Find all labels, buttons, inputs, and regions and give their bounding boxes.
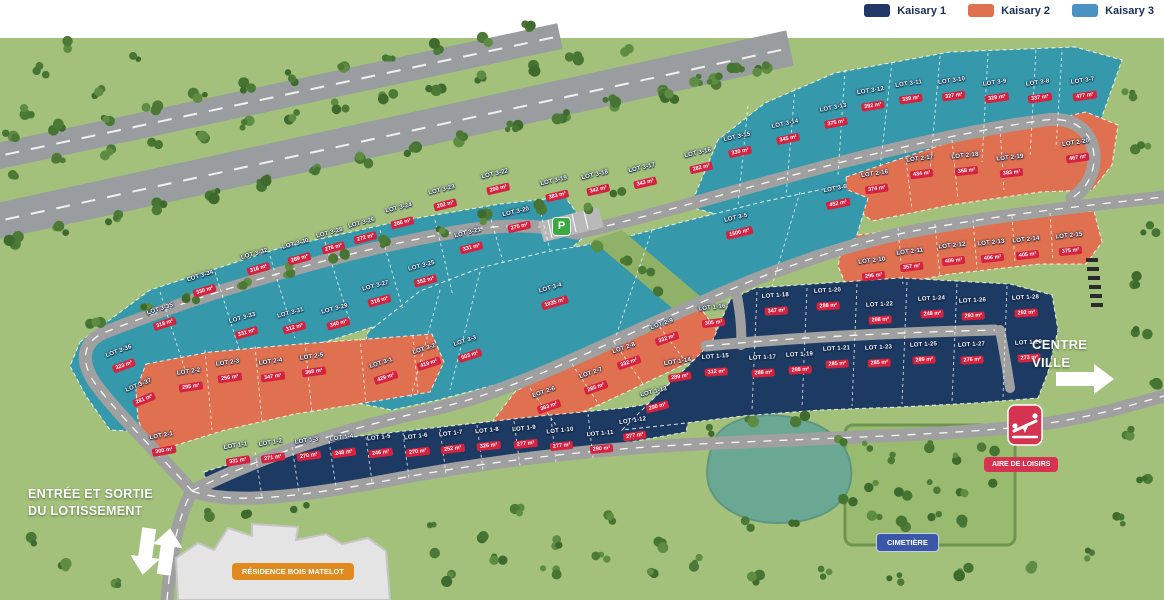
- lot-area-badge: 295 m²: [179, 381, 203, 392]
- lot-id: LOT 2-6: [532, 386, 556, 399]
- lot-area-badge: 375 m²: [1059, 246, 1083, 256]
- lot-id: LOT 1-5: [367, 434, 391, 443]
- lot-id: LOT 3-17: [628, 162, 656, 174]
- lot-label[interactable]: LOT 1-16305 m²: [698, 304, 728, 331]
- lot-label[interactable]: LOT 2-11357 m²: [896, 247, 926, 274]
- parking-icon: P: [552, 217, 571, 236]
- lot-label[interactable]: LOT 2-15375 m²: [1055, 232, 1085, 259]
- lot-label[interactable]: LOT 3-16282 m²: [684, 147, 716, 177]
- lot-id: LOT 1-9: [512, 425, 536, 433]
- lot-label[interactable]: LOT 3-23292 m²: [428, 184, 460, 214]
- lot-label[interactable]: LOT 3-28276 m²: [316, 227, 349, 257]
- lot-area-badge: 276 m²: [321, 241, 346, 255]
- lot-label[interactable]: LOT 1-6270 m²: [404, 433, 430, 460]
- lot-area-badge: 277 m²: [514, 439, 538, 449]
- lot-area-badge: 296 m²: [862, 271, 886, 282]
- lot-id: LOT 1-8: [475, 427, 499, 435]
- lot-label[interactable]: LOT 3-20275 m²: [502, 206, 534, 236]
- lot-id: LOT 3-10: [938, 76, 966, 86]
- lot-id: LOT 2-12: [938, 242, 966, 251]
- lot-id: LOT 3-16: [684, 147, 712, 159]
- lot-label[interactable]: LOT 1-28292 m²: [1012, 294, 1040, 319]
- lot-label[interactable]: LOT 3-24286 m²: [385, 202, 417, 232]
- lot-area-badge: 409 m²: [942, 256, 966, 266]
- lot-label[interactable]: LOT 1-14289 m²: [664, 357, 695, 385]
- lot-id: LOT 3-30: [282, 238, 310, 251]
- lot-label[interactable]: LOT 3-11339 m²: [895, 79, 925, 107]
- kaisary-2-label: Kaisary 2: [1001, 5, 1050, 17]
- lot-label[interactable]: LOT 3-19383 m²: [540, 175, 572, 205]
- lot-label[interactable]: LOT 1-12277 m²: [619, 416, 649, 444]
- lot-label[interactable]: LOT 2-4347 m²: [259, 357, 286, 384]
- lot-area-badge: 357 m²: [900, 262, 924, 273]
- lot-label[interactable]: LOT 1-18347 m²: [762, 292, 791, 318]
- lot-label[interactable]: LOT 3-51506 m²: [722, 212, 753, 241]
- lot-label[interactable]: LOT 1-26293 m²: [959, 297, 987, 322]
- lot-id: LOT 2-1: [149, 431, 173, 441]
- lot-id: LOT 1-20: [814, 287, 842, 294]
- lot-label[interactable]: LOT 3-12392 m²: [857, 86, 888, 114]
- lot-area-badge: 331 m²: [226, 455, 250, 467]
- lot-label[interactable]: LOT 2-8332 m²: [612, 342, 642, 372]
- lot-id: LOT 3-35: [146, 302, 174, 316]
- lot-label[interactable]: LOT 2-14405 m²: [1012, 236, 1042, 263]
- lot-label[interactable]: LOT 3-10327 m²: [938, 76, 968, 104]
- lot-area-badge: 300 m²: [152, 445, 176, 457]
- lot-area-badge: 275 m²: [507, 220, 532, 233]
- lot-id: LOT 1-24: [918, 295, 946, 302]
- lot-label[interactable]: LOT 2-18368 m²: [951, 152, 981, 179]
- lot-label[interactable]: LOT 2-1300 m²: [149, 431, 177, 459]
- kaisary-2-swatch: [968, 4, 994, 17]
- lot-label[interactable]: LOT 1-10277 m²: [546, 427, 576, 454]
- lot-area-badge: 277 m²: [623, 430, 647, 441]
- lot-id: LOT 1-19: [786, 351, 814, 358]
- lot-id: LOT 3-1: [369, 357, 393, 370]
- lot-area-badge: 286 m²: [390, 216, 415, 229]
- lot-id: LOT 1-17: [749, 354, 777, 361]
- lot-area-badge: 434 m²: [910, 169, 934, 180]
- lot-area-badge: 331 m²: [459, 241, 484, 254]
- lot-label[interactable]: LOT 2-20467 m²: [1062, 138, 1092, 166]
- lot-area-badge: 368 m²: [302, 366, 326, 377]
- lot-area-badge: 288 m²: [868, 315, 892, 324]
- lot-area-badge: 277 m²: [550, 441, 574, 451]
- lot-label[interactable]: LOT 3-25352 m²: [408, 260, 441, 290]
- lot-area-badge: 248 m²: [332, 447, 356, 458]
- lot-area-badge: 392 m²: [861, 100, 885, 112]
- lot-id: LOT 1-2: [258, 438, 282, 448]
- lot-area-badge: 343 m²: [633, 176, 658, 189]
- lot-label[interactable]: LOT 3-33331 m²: [229, 312, 262, 343]
- lot-label[interactable]: LOT 1-3270 m²: [295, 436, 322, 463]
- lot-label[interactable]: LOT 1-17288 m²: [749, 354, 777, 379]
- lot-label[interactable]: LOT 2-2295 m²: [177, 367, 204, 394]
- lot-area-badge: 285 m²: [584, 380, 609, 395]
- lot-id: LOT 2-17: [906, 154, 934, 163]
- lot-area-badge: 330 m²: [192, 283, 217, 298]
- lot-area-badge: 271 m²: [261, 452, 285, 464]
- lot-label[interactable]: LOT 3-34330 m²: [186, 270, 219, 301]
- lot-label[interactable]: LOT 3-36323 m²: [105, 344, 139, 376]
- lot-id: LOT 3-24: [385, 202, 413, 214]
- lot-label[interactable]: LOT 3-35318 m²: [146, 302, 179, 333]
- lot-id: LOT 3-19: [540, 175, 568, 187]
- lot-label[interactable]: LOT 3-21331 m²: [454, 227, 486, 257]
- lot-area-badge: 406 m²: [981, 253, 1005, 263]
- kaisary-1-label: Kaisary 1: [897, 5, 946, 17]
- lot-id: LOT 3-13: [819, 103, 847, 114]
- lot-label[interactable]: LOT 3-26272 m²: [348, 217, 381, 247]
- lot-id: LOT 2-13: [977, 239, 1005, 248]
- lot-area-badge: 289 m²: [668, 371, 692, 383]
- lot-area-badge: 246 m²: [369, 448, 393, 459]
- lot-label[interactable]: LOT 1-25289 m²: [910, 341, 938, 366]
- centre-ville-label: CENTRE VILLE: [1032, 336, 1087, 371]
- lot-area-badge: 452 m²: [826, 198, 851, 210]
- lot-id: LOT 3-22: [481, 168, 509, 180]
- lot-id: LOT 1-15: [702, 353, 730, 361]
- lot-id: LOT 2-3: [216, 358, 240, 367]
- lot-label[interactable]: LOT 2-13406 m²: [977, 239, 1007, 266]
- lot-area-badge: 285 m²: [867, 358, 891, 367]
- lot-id: LOT 3-11: [895, 79, 923, 89]
- lot-area-badge: 288 m²: [751, 368, 775, 377]
- lot-label[interactable]: LOT 1-21285 m²: [823, 345, 851, 370]
- lot-label[interactable]: LOT 2-16374 m²: [861, 169, 891, 197]
- lot-id: LOT 1-27: [958, 341, 986, 348]
- lot-id: LOT 3-27: [362, 280, 390, 293]
- lot-id: LOT 1-16: [698, 304, 726, 313]
- lot-label[interactable]: LOT 2-10296 m²: [858, 256, 888, 283]
- lot-area-badge: 330 m²: [728, 146, 753, 159]
- lot-label[interactable]: LOT 1-22288 m²: [866, 301, 894, 326]
- lot-area-badge: 248 m²: [920, 309, 944, 318]
- lot-id: LOT 2-8: [612, 342, 636, 355]
- lot-area-badge: 290 m²: [645, 400, 670, 413]
- lot-area-badge: 288 m²: [788, 365, 812, 374]
- lot-id: LOT 1-7: [439, 430, 463, 439]
- lot-label[interactable]: LOT 3-29340 m²: [321, 303, 354, 333]
- lot-id: LOT 3-2: [412, 343, 436, 356]
- lot-area-badge: 342 m²: [586, 183, 611, 196]
- lot-id: LOT 2-2: [177, 367, 201, 376]
- lot-label[interactable]: LOT 3-17343 m²: [628, 162, 660, 192]
- lot-id: LOT 2-15: [1055, 232, 1083, 241]
- lot-area-badge: 318 m²: [152, 316, 177, 331]
- lot-area-badge: 374 m²: [865, 183, 889, 194]
- lot-area-badge: 332 m²: [655, 331, 680, 346]
- lot-labels-layer: LOT 3-1429 m²LOT 3-2419 m²LOT 3-3503 m²L…: [0, 0, 1164, 600]
- lot-label[interactable]: LOT 1-27276 m²: [958, 341, 986, 366]
- lot-id: LOT 2-19: [996, 154, 1024, 163]
- lot-area-badge: 252 m²: [441, 444, 465, 455]
- lot-id: LOT 1-25: [910, 341, 938, 348]
- lot-id: LOT 1-21: [823, 345, 851, 352]
- lot-id: LOT 3-4: [537, 282, 564, 295]
- lot-label[interactable]: LOT 3-7477 m²: [1071, 76, 1098, 103]
- lot-label[interactable]: LOT 3-3503 m²: [453, 335, 483, 365]
- lot-id: LOT 2-11: [896, 247, 923, 256]
- lot-id: LOT 3-15: [723, 131, 751, 143]
- lot-label[interactable]: LOT 1-2271 m²: [258, 438, 285, 465]
- lot-id: LOT 1-4: [330, 433, 354, 442]
- lot-id: LOT 3-6: [823, 184, 847, 194]
- lot-area-badge: 327 m²: [942, 90, 966, 101]
- lot-area-badge: 288 m²: [816, 301, 840, 310]
- lot-label[interactable]: LOT 1-19288 m²: [786, 351, 814, 376]
- lot-label[interactable]: LOT 3-32316 m²: [241, 248, 274, 279]
- lot-label[interactable]: LOT 3-37281 m²: [125, 378, 159, 410]
- legend: Kaisary 1 Kaisary 2 Kaisary 3: [864, 4, 1154, 17]
- lot-label[interactable]: LOT 1-9277 m²: [512, 425, 538, 451]
- lot-id: LOT 2-7: [579, 367, 603, 380]
- lot-area-badge: 1506 m²: [726, 226, 754, 240]
- lot-id: LOT 1-1: [223, 441, 247, 451]
- lot-label[interactable]: LOT 2-19383 m²: [996, 154, 1026, 181]
- lot-id: LOT 2-16: [861, 169, 889, 179]
- lot-area-badge: 305 m²: [702, 318, 726, 328]
- lot-id: LOT 3-5: [722, 212, 749, 224]
- lot-id: LOT 1-10: [546, 427, 574, 436]
- lot-label[interactable]: LOT 3-6452 m²: [823, 184, 851, 212]
- kaisary-1-swatch: [864, 4, 890, 17]
- lot-label[interactable]: LOT 3-14345 m²: [771, 118, 803, 147]
- lot-area-badge: 363 m²: [537, 399, 562, 414]
- lot-id: LOT 2-18: [951, 152, 979, 161]
- lot-area-badge: 375 m²: [824, 117, 849, 129]
- lot-label[interactable]: LOT 2-6363 m²: [532, 386, 562, 416]
- lot-id: LOT 3-33: [229, 312, 257, 325]
- lot-area-badge: 329 m²: [985, 92, 1009, 103]
- lot-area-badge: 285 m²: [825, 359, 849, 368]
- lot-area-badge: 477 m²: [1073, 90, 1097, 101]
- lot-id: LOT 1-12: [619, 416, 647, 426]
- lot-label[interactable]: LOT 2-3256 m²: [216, 358, 243, 385]
- kaisary-3-label: Kaisary 3: [1105, 5, 1154, 17]
- lot-label[interactable]: LOT 3-27318 m²: [362, 280, 395, 310]
- lot-area-badge: 1035 m²: [541, 295, 569, 310]
- lot-id: LOT 3-32: [241, 248, 269, 261]
- lot-id: LOT 1-11: [587, 430, 614, 438]
- lot-label[interactable]: LOT 2-5368 m²: [300, 352, 327, 379]
- lot-area-badge: 331 m²: [234, 326, 259, 340]
- legend-item-kaisary-1: Kaisary 1: [864, 4, 946, 17]
- lot-label[interactable]: LOT 3-30289 m²: [282, 238, 315, 268]
- legend-item-kaisary-3: Kaisary 3: [1072, 4, 1154, 17]
- lot-label[interactable]: LOT 2-12409 m²: [938, 242, 968, 269]
- lot-area-badge: 292 m²: [433, 198, 458, 211]
- lot-area-badge: 316 m²: [246, 262, 271, 276]
- lot-id: LOT 3-29: [321, 303, 349, 316]
- lot-id: LOT 3-34: [186, 270, 214, 284]
- lot-id: LOT 3-18: [581, 169, 609, 181]
- lot-label[interactable]: LOT 3-15330 m²: [723, 131, 755, 160]
- residence-badge: RÉSIDENCE BOIS MATELOT: [232, 563, 354, 580]
- lot-label[interactable]: LOT 3-9329 m²: [983, 78, 1010, 105]
- lot-area-badge: 429 m²: [373, 370, 398, 385]
- lot-id: LOT 3-21: [454, 227, 482, 239]
- lot-label[interactable]: LOT 3-1429 m²: [369, 357, 399, 387]
- lot-area-badge: 383 m²: [1000, 168, 1024, 178]
- lot-label[interactable]: LOT 3-13375 m²: [819, 103, 850, 132]
- lot-id: LOT 1-14: [664, 357, 692, 367]
- lot-area-badge: 256 m²: [218, 372, 242, 383]
- lot-area-badge: 312 m²: [282, 321, 307, 335]
- lot-area-badge: 276 m²: [960, 355, 984, 364]
- lot-id: LOT 3-28: [316, 227, 344, 240]
- lot-area-badge: 272 m²: [353, 231, 378, 245]
- lot-area-badge: 289 m²: [287, 252, 312, 266]
- lot-id: LOT 3-36: [105, 344, 133, 359]
- legend-item-kaisary-2: Kaisary 2: [968, 4, 1050, 17]
- lot-label[interactable]: LOT 3-22290 m²: [481, 168, 513, 198]
- lot-id: LOT 1-23: [865, 344, 893, 351]
- lot-area-badge: 281 m²: [132, 391, 157, 407]
- lot-id: LOT 1-18: [762, 292, 790, 300]
- lot-id: LOT 1-13: [640, 386, 668, 398]
- lot-id: LOT 1-28: [1012, 294, 1040, 301]
- lot-area-badge: 383 m²: [545, 189, 570, 202]
- lot-area-badge: 503 m²: [457, 348, 482, 363]
- lot-area-badge: 340 m²: [326, 317, 351, 331]
- lot-label[interactable]: LOT 1-4248 m²: [330, 433, 357, 460]
- lot-area-badge: 323 m²: [112, 358, 137, 374]
- lot-label[interactable]: LOT 3-18342 m²: [581, 169, 613, 199]
- lot-area-badge: 347 m²: [261, 371, 285, 382]
- leisure-badge: AIRE DE LOISIRS: [984, 457, 1058, 472]
- lot-id: LOT 3-37: [125, 378, 153, 394]
- lot-area-badge: 290 m²: [589, 444, 613, 454]
- lot-id: LOT 3-20: [502, 206, 530, 218]
- lot-area-badge: 467 m²: [1066, 152, 1090, 163]
- entrance-label: ENTRÉE ET SORTIE DU LOTISSEMENT: [28, 486, 153, 520]
- lot-id: LOT 2-5: [300, 352, 324, 361]
- lot-id: LOT 1-3: [295, 436, 319, 445]
- lot-id: LOT 3-26: [348, 217, 376, 230]
- lot-id: LOT 1-22: [866, 301, 894, 308]
- lot-area-badge: 293 m²: [961, 311, 985, 320]
- lot-label[interactable]: LOT 1-23285 m²: [865, 344, 893, 369]
- lot-area-badge: 352 m²: [413, 274, 438, 288]
- lot-label[interactable]: LOT 2-9332 m²: [650, 318, 680, 348]
- lot-area-badge: 345 m²: [776, 133, 801, 146]
- cemetery-badge: CIMETIÈRE: [876, 533, 939, 552]
- lot-id: LOT 3-8: [1026, 78, 1050, 87]
- lot-label[interactable]: LOT 2-7285 m²: [579, 367, 609, 397]
- lot-area-badge: 332 m²: [617, 355, 642, 370]
- lot-label[interactable]: LOT 1-11290 m²: [587, 430, 616, 456]
- lot-area-badge: 312 m²: [704, 367, 728, 377]
- lot-id: LOT 3-23: [428, 184, 456, 196]
- lot-label[interactable]: LOT 1-7252 m²: [439, 430, 465, 457]
- lot-label[interactable]: LOT 1-5246 m²: [367, 434, 393, 461]
- lot-id: LOT 3-12: [857, 86, 885, 96]
- lot-area-badge: 347 m²: [764, 306, 788, 316]
- lot-id: LOT 3-31: [277, 307, 305, 320]
- lot-label[interactable]: LOT 3-31312 m²: [277, 307, 310, 337]
- lot-label[interactable]: LOT 1-8326 m²: [475, 427, 501, 453]
- lot-label[interactable]: LOT 1-24248 m²: [918, 295, 946, 320]
- kaisary-3-swatch: [1072, 4, 1098, 17]
- lot-area-badge: 270 m²: [297, 450, 321, 461]
- lot-label[interactable]: LOT 1-20288 m²: [814, 287, 842, 312]
- lot-id: LOT 2-9: [650, 318, 674, 331]
- lot-area-badge: 339 m²: [899, 93, 923, 104]
- lot-label[interactable]: LOT 1-13290 m²: [640, 386, 672, 416]
- lot-label[interactable]: LOT 1-15312 m²: [702, 353, 731, 379]
- lot-id: LOT 3-9: [983, 78, 1007, 87]
- lot-label[interactable]: LOT 3-41035 m²: [537, 282, 569, 312]
- lot-id: LOT 2-20: [1062, 138, 1090, 148]
- lot-area-badge: 337 m²: [1028, 92, 1052, 103]
- lot-label[interactable]: LOT 3-2419 m²: [412, 343, 442, 373]
- lot-area-badge: 292 m²: [1014, 308, 1038, 317]
- lot-area-badge: 419 m²: [416, 356, 441, 371]
- lot-area-badge: 290 m²: [486, 182, 511, 195]
- lot-area-badge: 289 m²: [912, 355, 936, 364]
- lot-id: LOT 2-4: [259, 357, 283, 366]
- lot-id: LOT 2-14: [1012, 236, 1040, 245]
- lot-area-badge: 326 m²: [477, 441, 501, 451]
- lot-id: LOT 1-26: [959, 297, 987, 304]
- lot-label[interactable]: LOT 2-17434 m²: [906, 154, 936, 181]
- lot-area-badge: 270 m²: [406, 447, 430, 458]
- lot-label[interactable]: LOT 1-1331 m²: [223, 441, 250, 468]
- lot-area-badge: 282 m²: [689, 161, 714, 174]
- lot-label[interactable]: LOT 3-8337 m²: [1026, 78, 1053, 105]
- lot-id: LOT 3-14: [771, 118, 799, 130]
- lot-area-badge: 318 m²: [367, 294, 392, 308]
- lot-id: LOT 3-7: [1071, 76, 1095, 85]
- lot-id: LOT 1-6: [404, 433, 428, 442]
- site-plan: LOT 3-1429 m²LOT 3-2419 m²LOT 3-3503 m²L…: [0, 0, 1164, 600]
- lot-area-badge: 368 m²: [955, 166, 979, 176]
- lot-id: LOT 3-25: [408, 260, 436, 273]
- lot-id: LOT 2-10: [858, 256, 886, 265]
- lot-area-badge: 405 m²: [1016, 250, 1040, 260]
- lot-id: LOT 3-3: [453, 335, 477, 348]
